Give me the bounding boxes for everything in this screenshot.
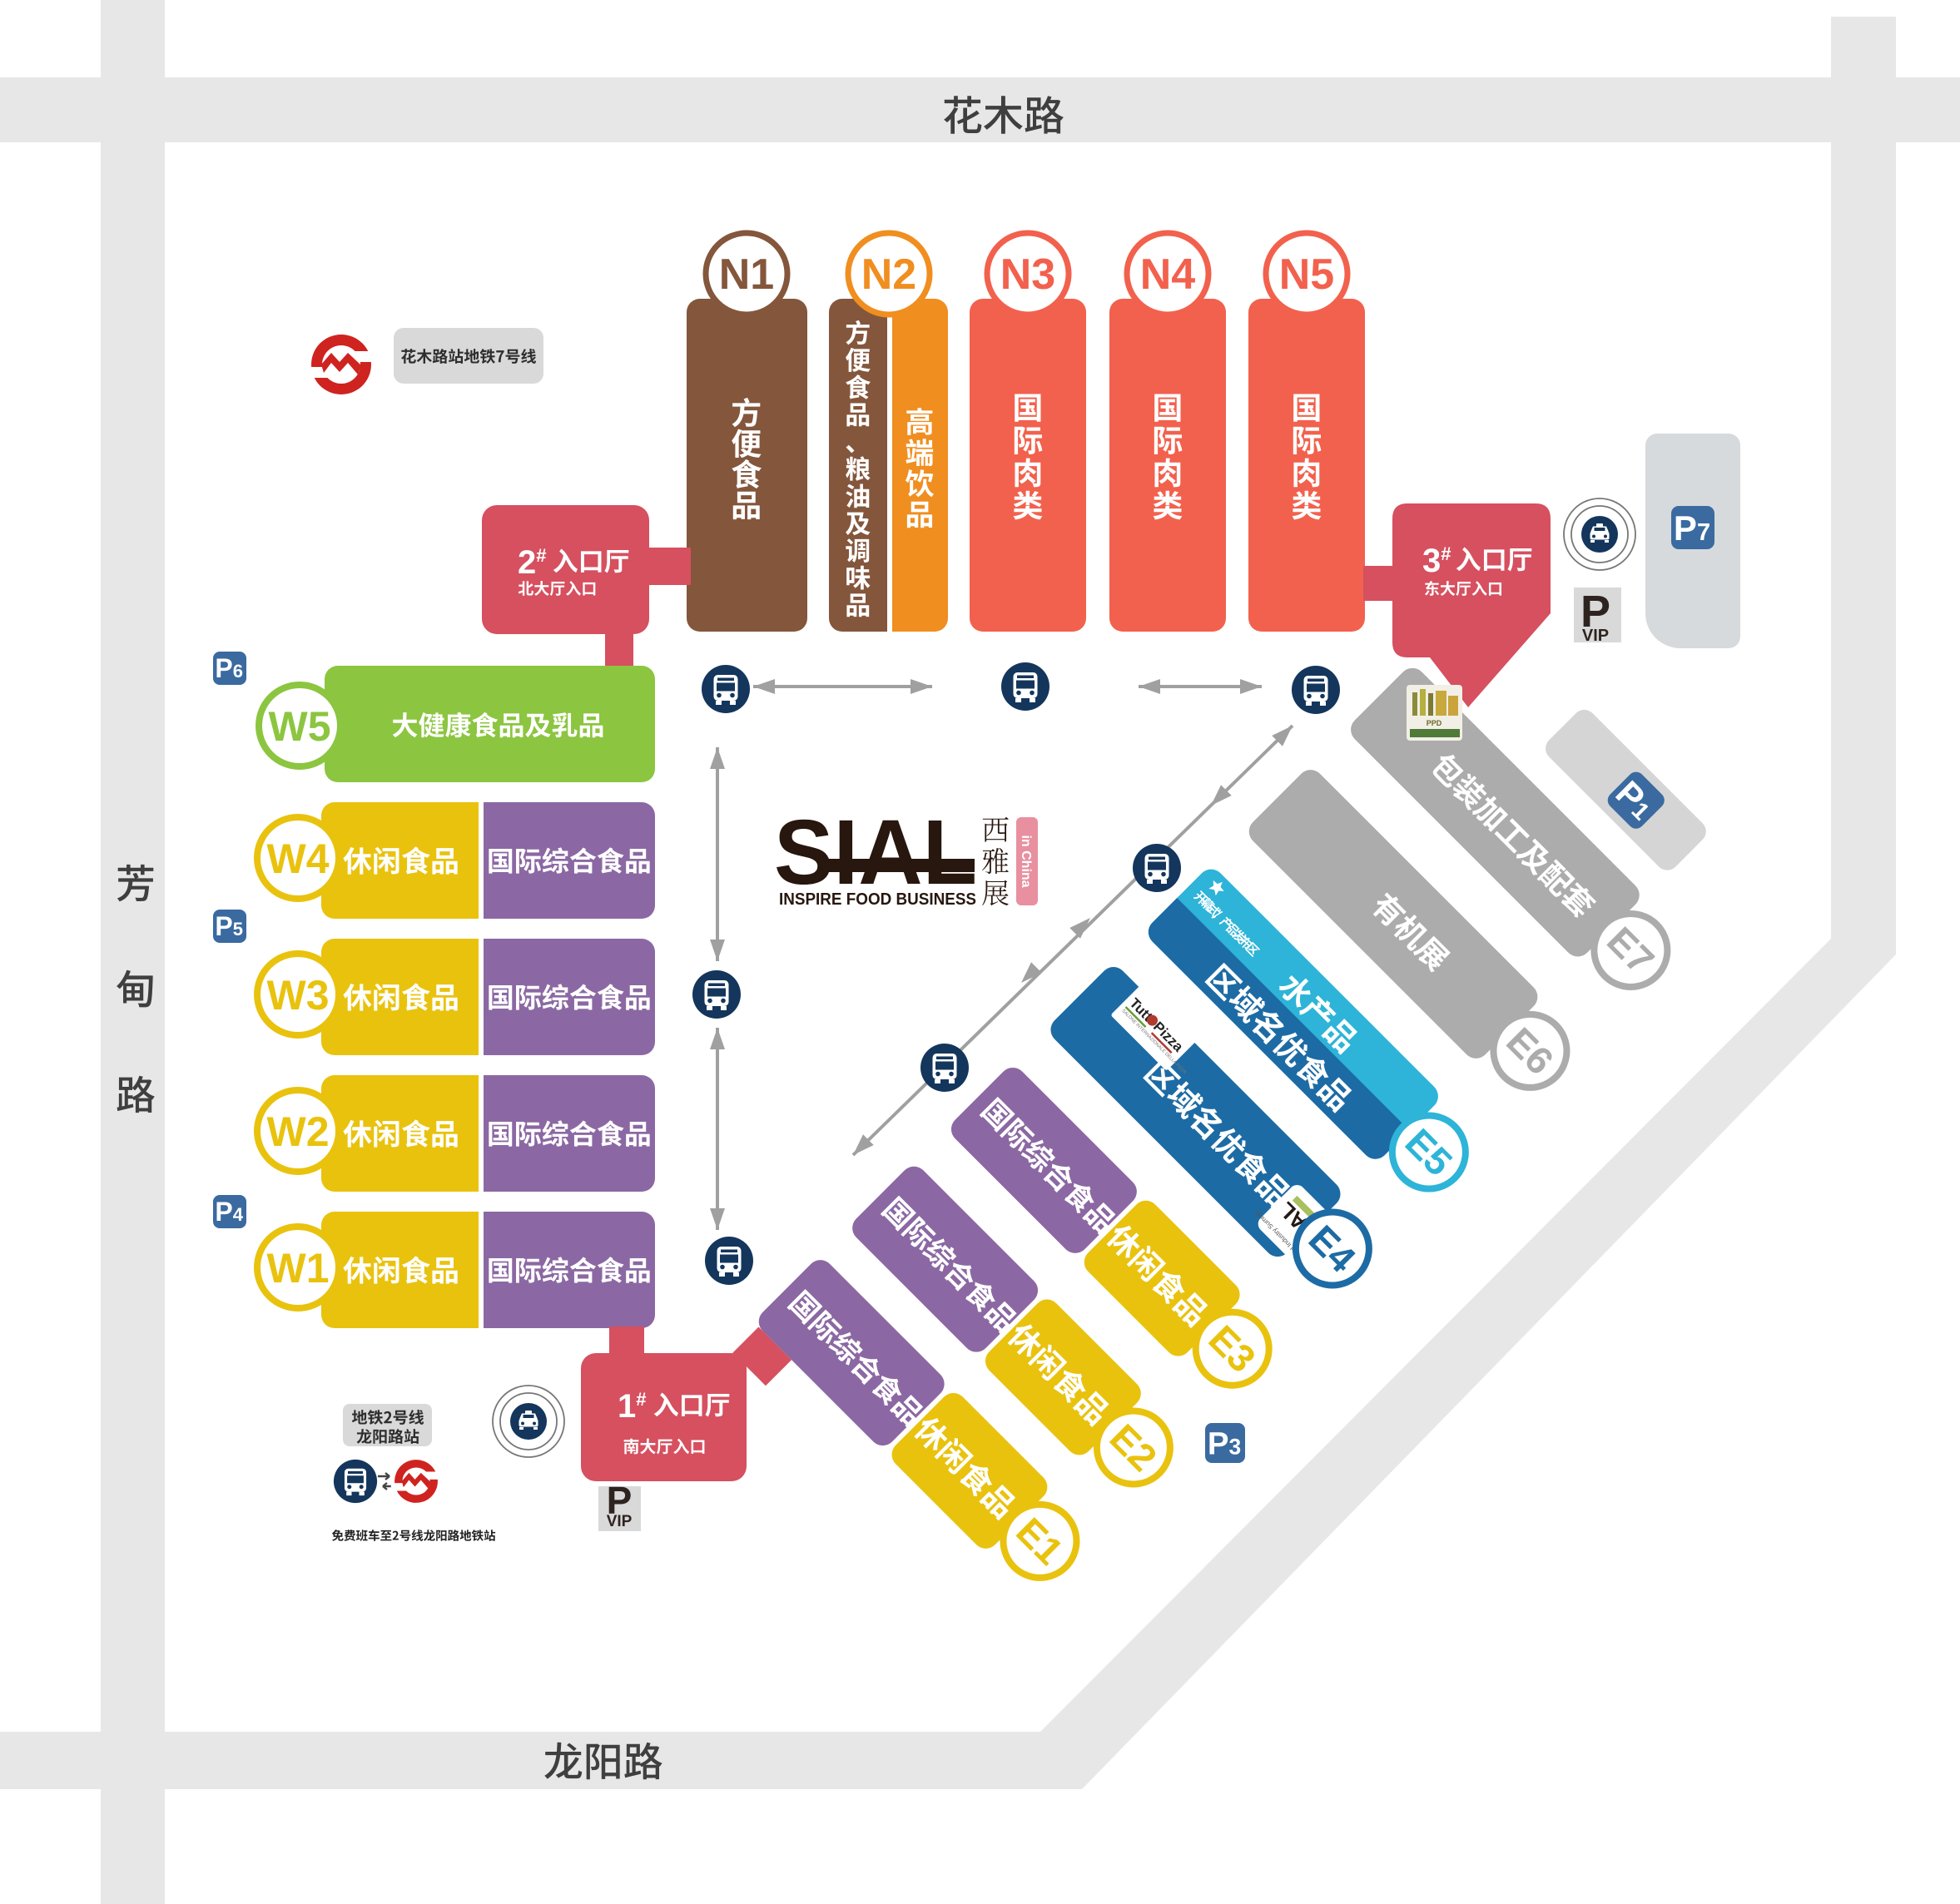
svg-text:W1: W1 <box>267 1245 330 1292</box>
svg-text:W3: W3 <box>267 972 330 1019</box>
svg-text:INSPIRE FOOD BUSINESS: INSPIRE FOOD BUSINESS <box>779 890 976 909</box>
svg-text:PPD: PPD <box>1427 719 1442 727</box>
svg-text:N2: N2 <box>861 250 916 299</box>
svg-text:VIP: VIP <box>607 1513 633 1530</box>
svg-text:N3: N3 <box>1000 250 1055 299</box>
svg-text:N1: N1 <box>719 250 774 299</box>
svg-text:SIAL: SIAL <box>774 801 977 904</box>
svg-text:VIP: VIP <box>1582 627 1609 645</box>
svg-text:N5: N5 <box>1279 250 1334 299</box>
svg-text:N4: N4 <box>1140 250 1196 299</box>
svg-text:W5: W5 <box>269 703 331 750</box>
svg-text:W2: W2 <box>267 1108 330 1155</box>
svg-text:in China: in China <box>1019 835 1033 887</box>
svg-text:W4: W4 <box>267 835 330 882</box>
